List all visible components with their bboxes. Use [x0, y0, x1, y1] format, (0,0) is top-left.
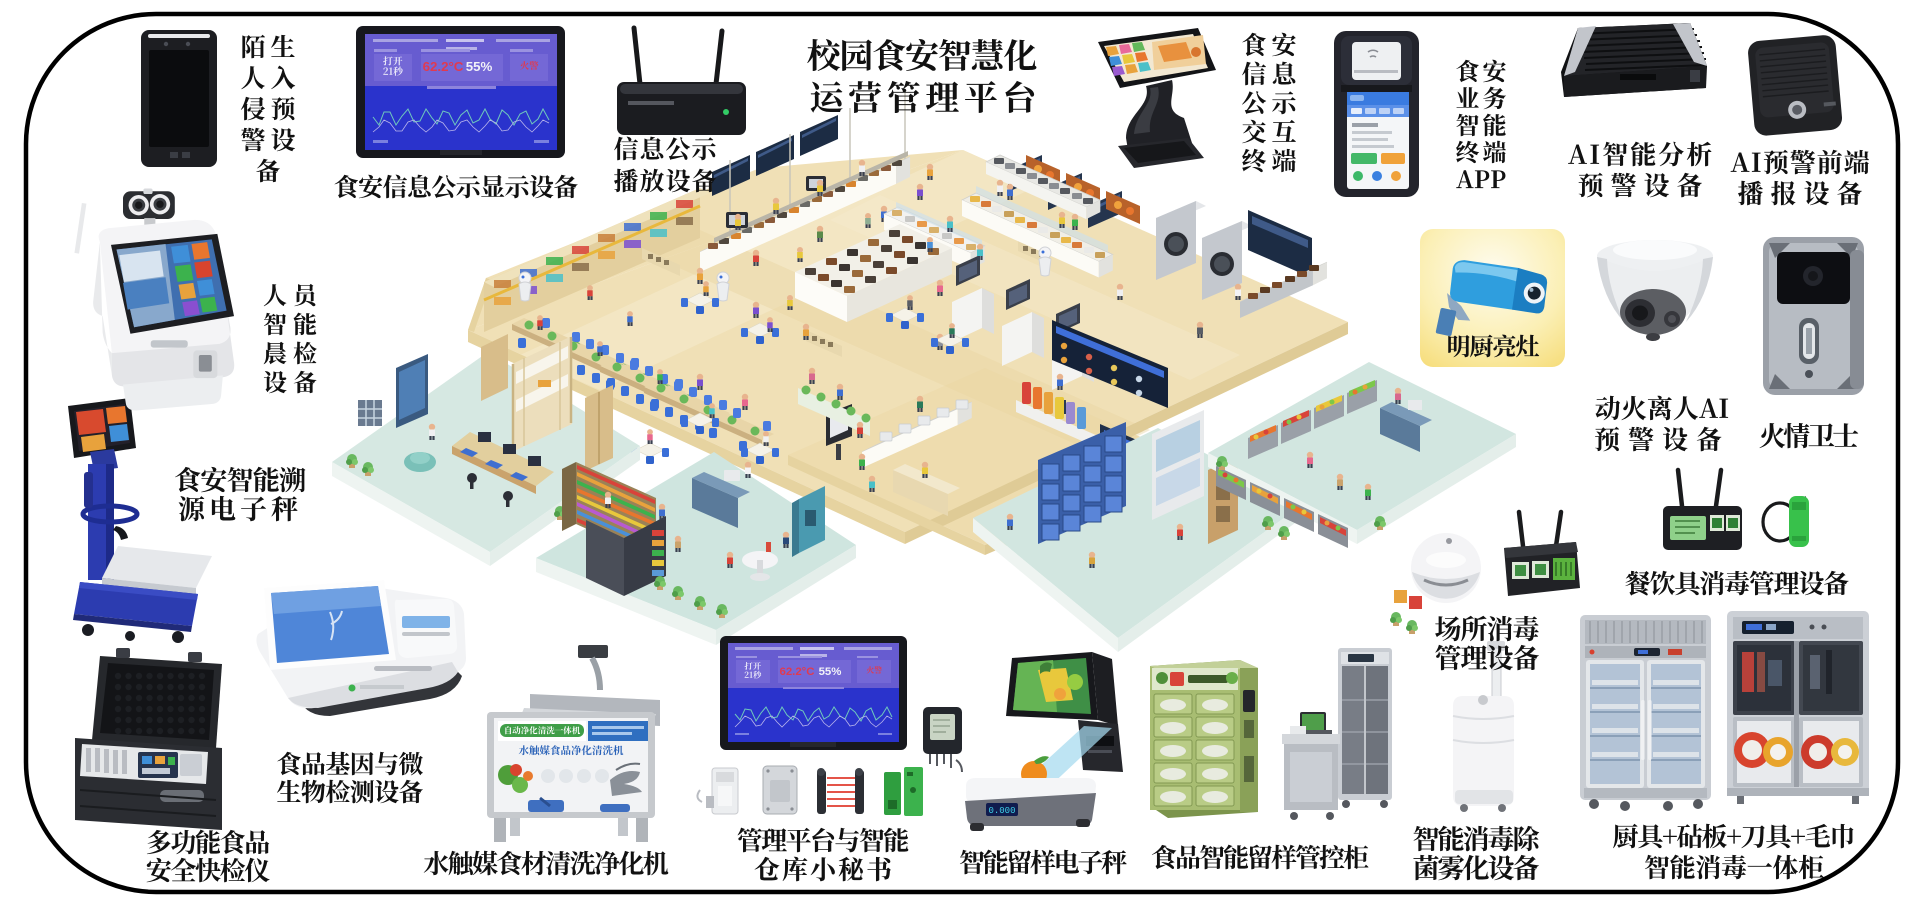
svg-text:62.2°C: 62.2°C	[780, 666, 815, 678]
svg-text:0.000: 0.000	[988, 806, 1015, 816]
svg-text:55%: 55%	[819, 666, 842, 678]
svg-text:62.2°C: 62.2°C	[423, 59, 464, 74]
svg-text:55%: 55%	[466, 59, 493, 74]
